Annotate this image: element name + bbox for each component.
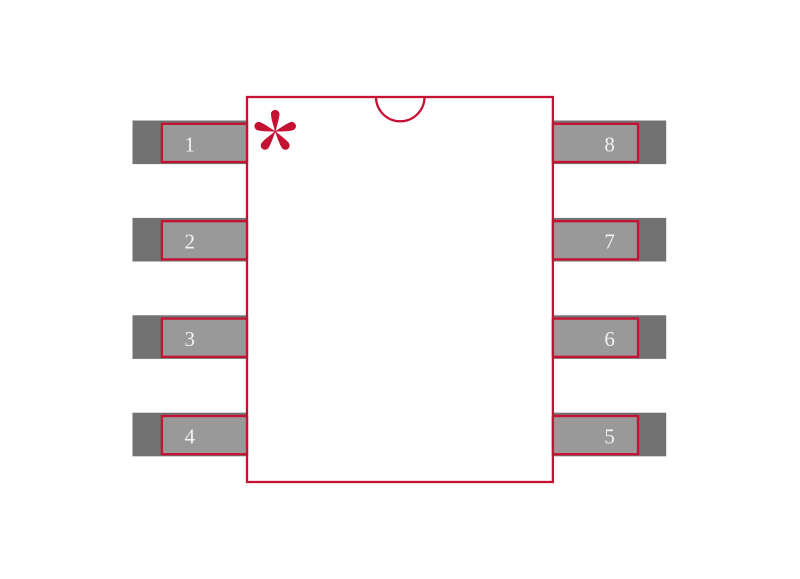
svg-text:7: 7 — [604, 230, 615, 254]
svg-text:8: 8 — [604, 132, 615, 156]
svg-text:1: 1 — [184, 132, 195, 156]
svg-text:4: 4 — [184, 425, 195, 449]
svg-text:2: 2 — [184, 230, 195, 254]
svg-text:3: 3 — [184, 327, 195, 351]
svg-text:5: 5 — [604, 425, 615, 449]
svg-text:6: 6 — [604, 327, 615, 351]
